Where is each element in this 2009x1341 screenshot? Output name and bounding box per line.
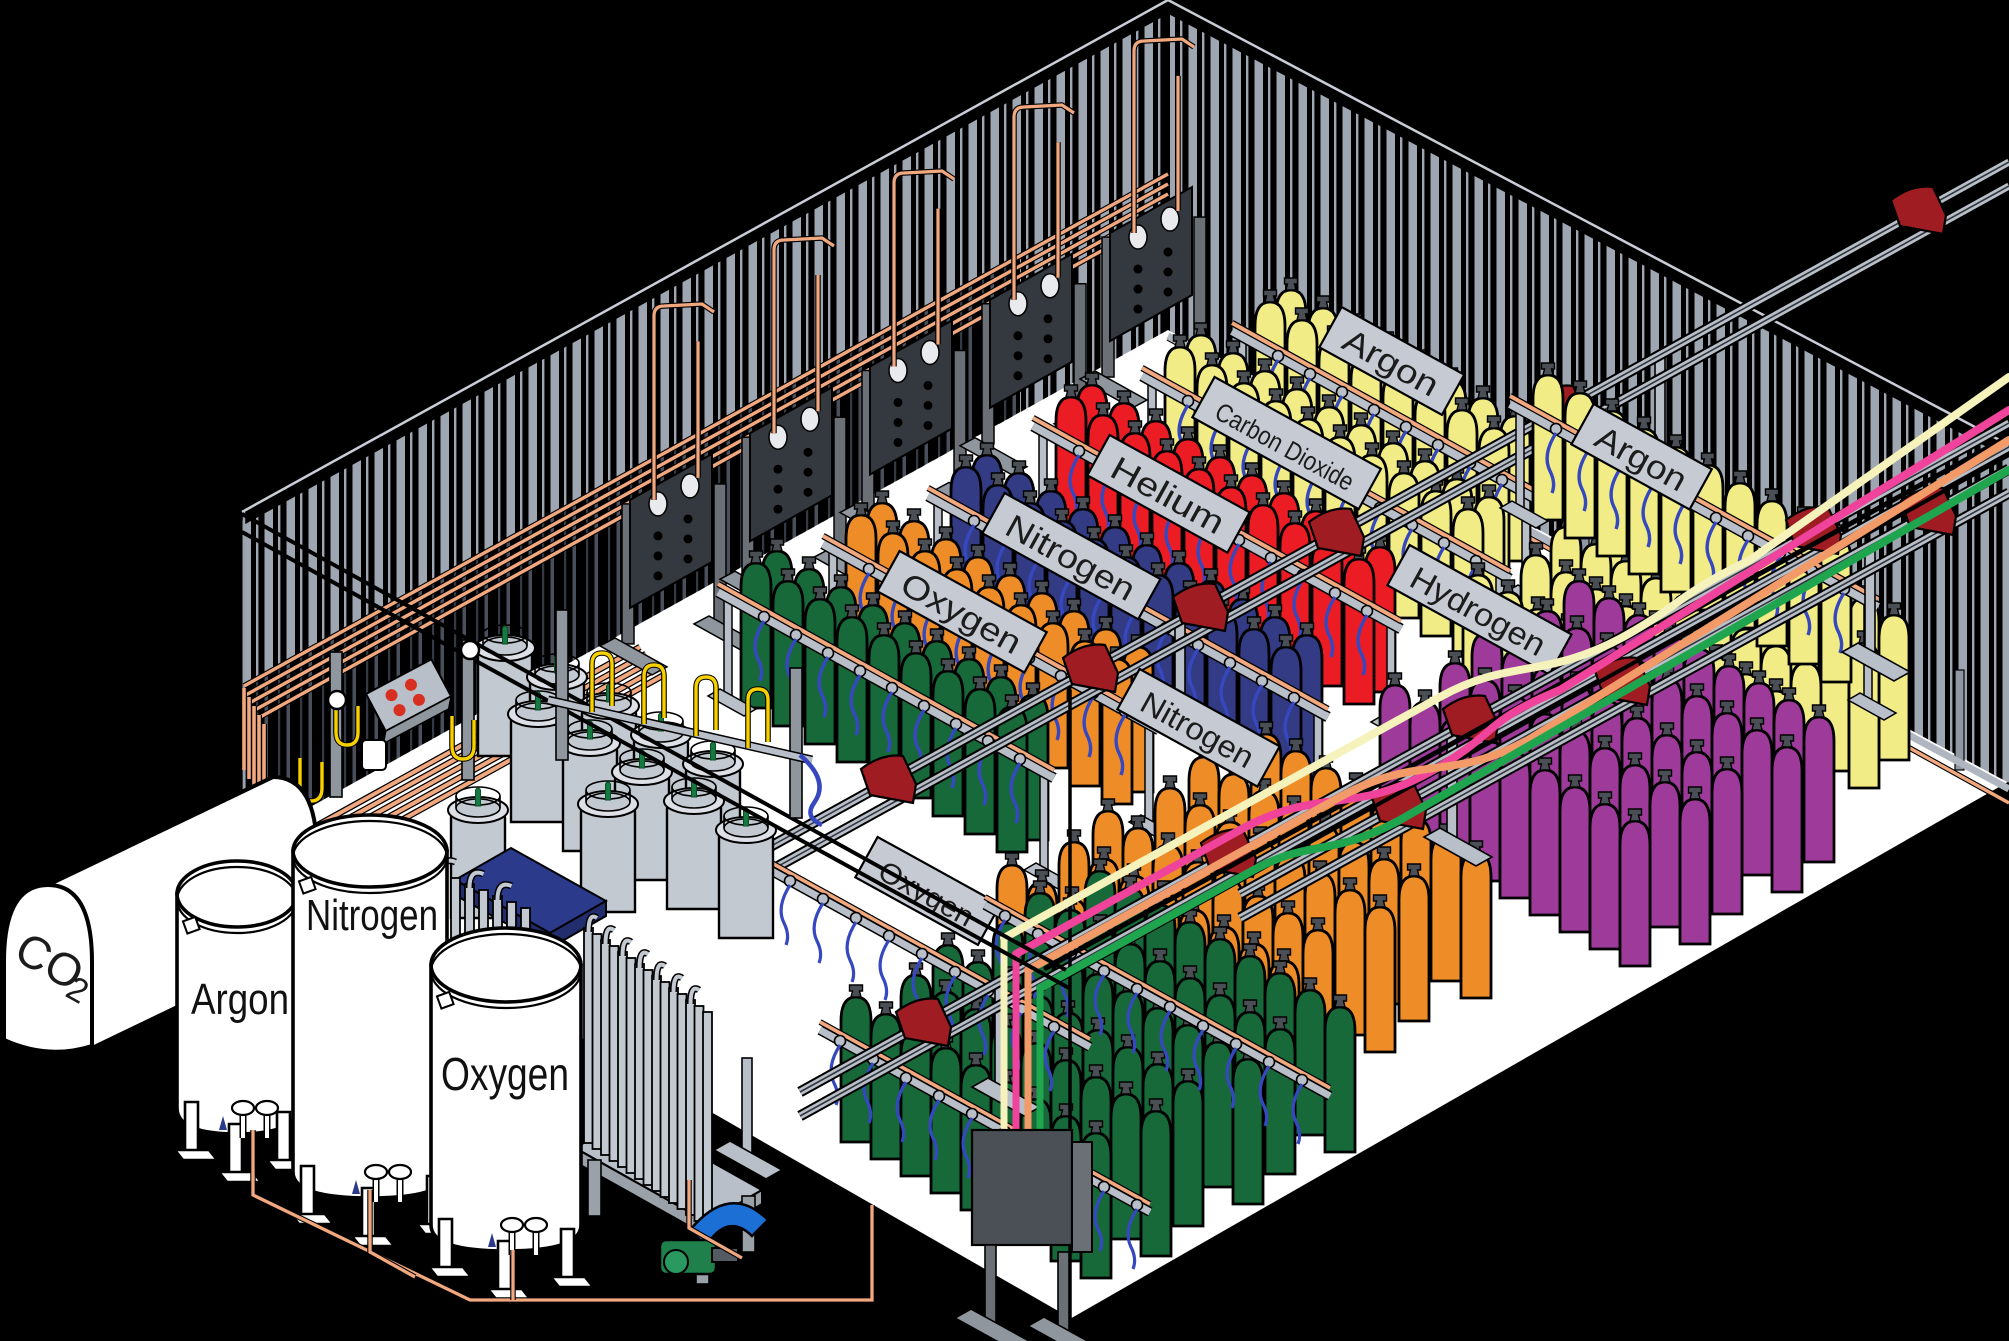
svg-text:Nitrogen: Nitrogen	[306, 891, 438, 940]
svg-text:Oxygen: Oxygen	[441, 1048, 569, 1100]
svg-text:Argon: Argon	[191, 975, 289, 1024]
